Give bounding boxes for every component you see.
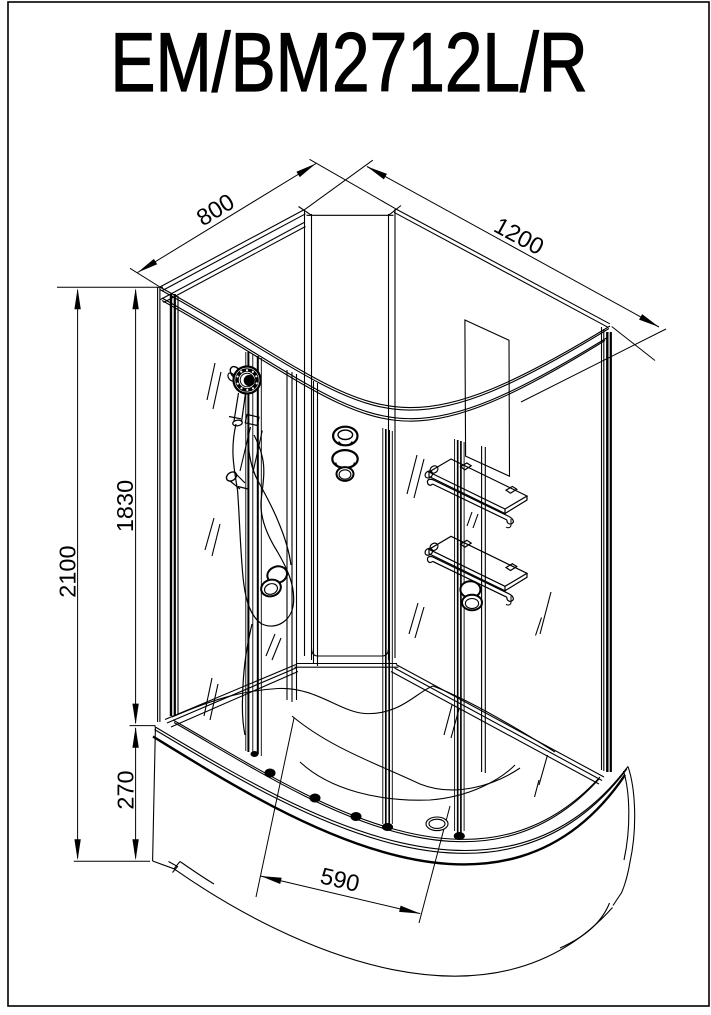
svg-text:EM/BM2712L/R: EM/BM2712L/R [110,16,587,109]
svg-text:270: 270 [112,770,138,809]
svg-text:800: 800 [192,188,239,231]
svg-text:1200: 1200 [490,212,548,260]
svg-text:2100: 2100 [54,545,80,597]
svg-text:1830: 1830 [112,480,138,532]
svg-text:590: 590 [318,863,362,897]
